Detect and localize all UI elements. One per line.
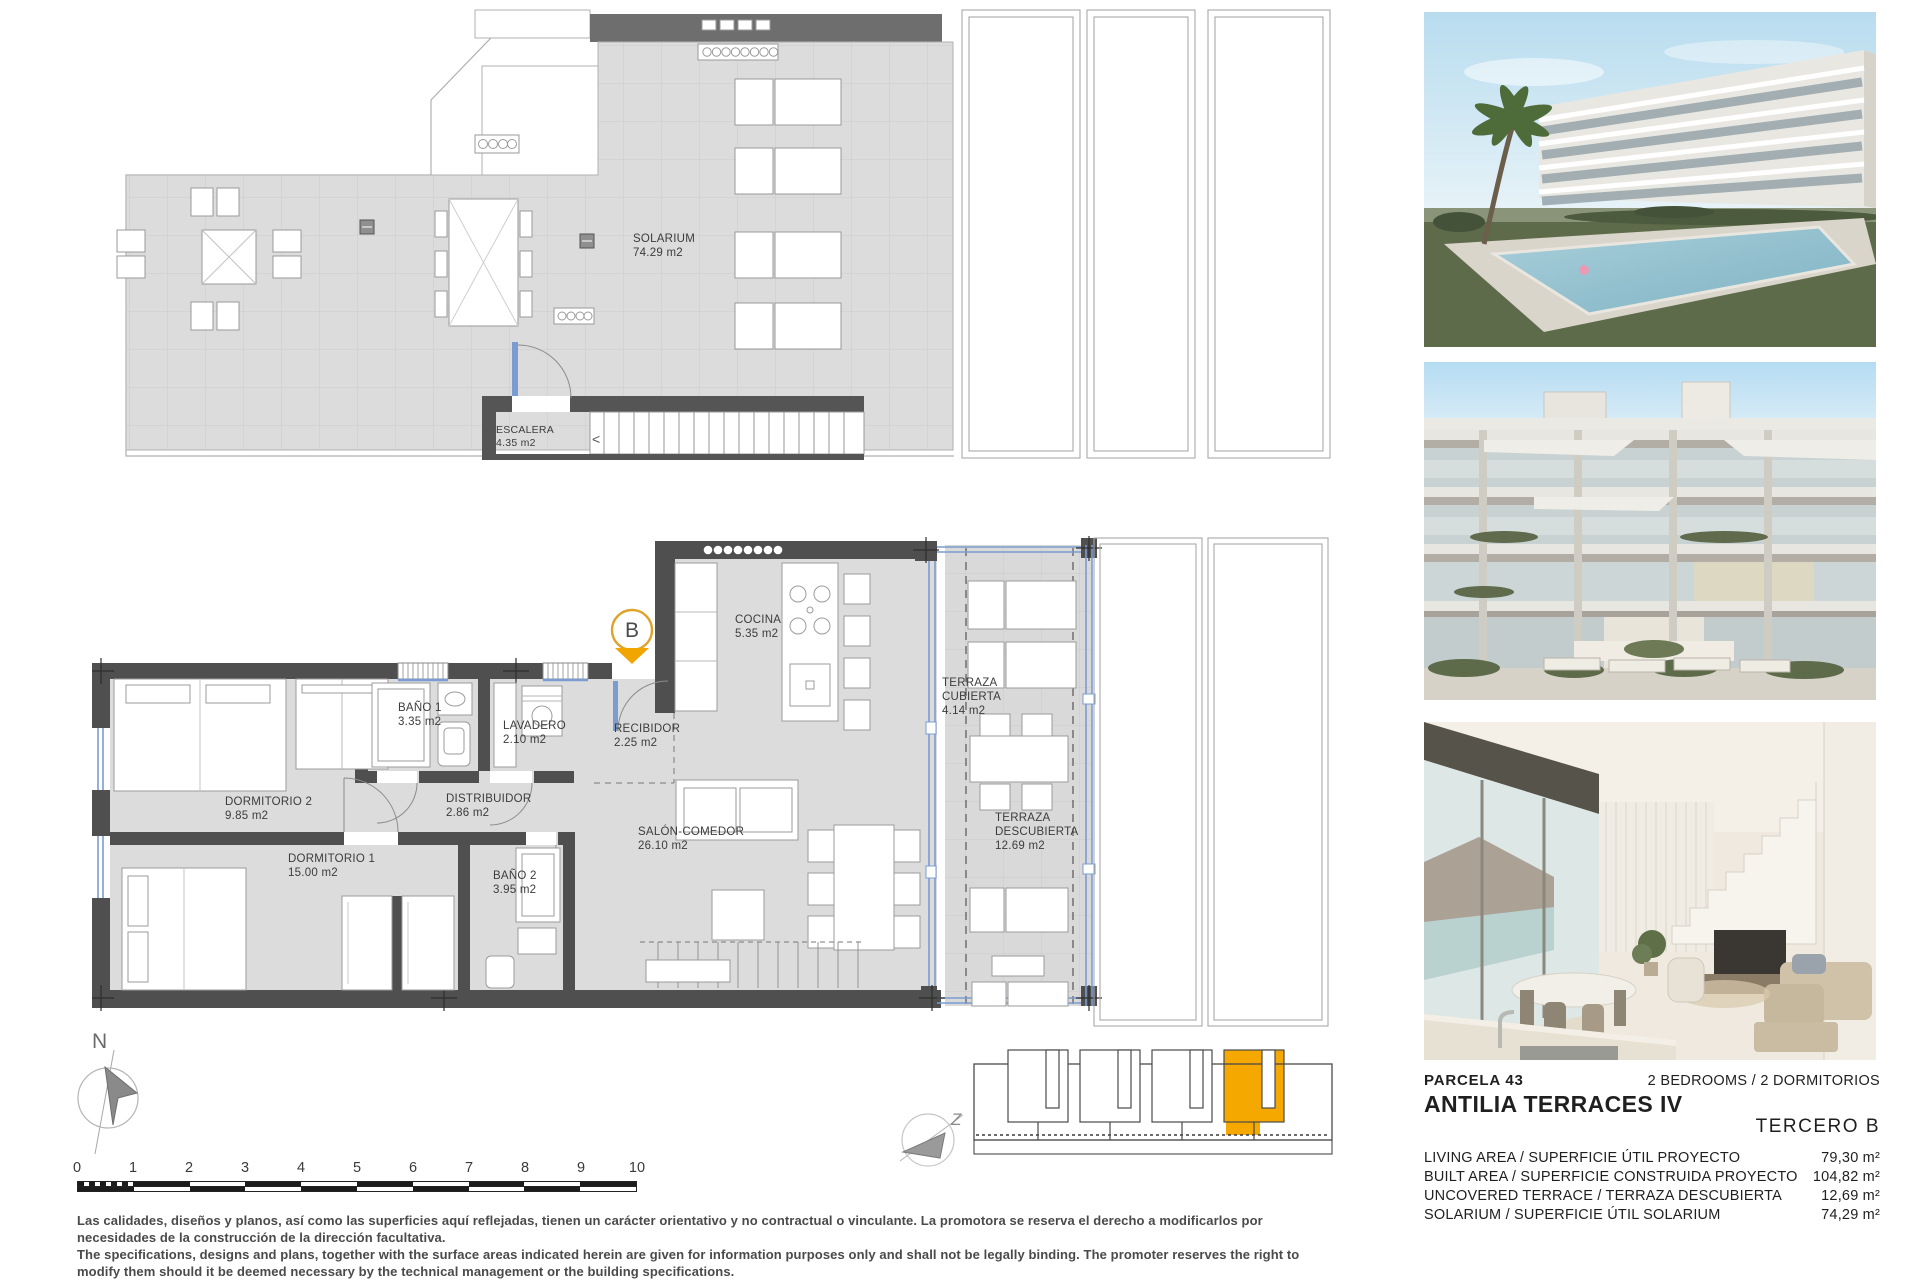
- project-title: ANTILIA TERRACES IV: [1424, 1091, 1880, 1118]
- room-label-dormitorio-1: DORMITORIO 115.00 m2: [288, 853, 375, 881]
- scale-number: 3: [241, 1160, 249, 1176]
- unit-letter: B: [625, 619, 639, 642]
- area-row-value: 104,82 m²: [1811, 1167, 1880, 1186]
- scale-number: 8: [521, 1160, 529, 1176]
- scale-number: 1: [129, 1160, 137, 1176]
- parcela-label: PARCELA 43: [1424, 1072, 1524, 1089]
- area-row-value: 12,69 m²: [1811, 1186, 1880, 1205]
- scale-number: 0: [73, 1160, 81, 1176]
- main-plan-drawing: B: [92, 536, 1102, 1036]
- room-label-salon-comedor: SALÓN-COMEDOR26.10 m2: [638, 826, 744, 854]
- scale-number: 2: [185, 1160, 193, 1176]
- unit-b-marker: B: [612, 610, 652, 664]
- main-floor-plan: B: [92, 536, 1102, 1036]
- scale-number: 10: [629, 1160, 645, 1176]
- adjacent-units-outline-top: [952, 6, 1344, 462]
- adjacent-units-outline-main: [1084, 534, 1340, 1032]
- room-label-lavadero: LAVADERO2.10 m2: [503, 720, 566, 748]
- photo-interior: [1424, 722, 1876, 1060]
- room-label-recibidor: RECIBIDOR2.25 m2: [614, 723, 680, 751]
- room-label-cocina: COCINA5.35 m2: [735, 614, 781, 642]
- disclaimer-es: Las calidades, diseños y planos, así com…: [77, 1212, 1332, 1246]
- scale-number: 5: [353, 1160, 361, 1176]
- area-row-label: BUILT AREA / SUPERFICIE CONSTRUIDA PROYE…: [1424, 1167, 1811, 1186]
- keyplan-compass-icon: Z: [888, 1095, 978, 1175]
- area-row-label: LIVING AREA / SUPERFICIE ÚTIL PROYECTO: [1424, 1148, 1811, 1167]
- table-row: UNCOVERED TERRACE / TERRAZA DESCUBIERTA …: [1424, 1186, 1880, 1205]
- table-row: BUILT AREA / SUPERFICIE CONSTRUIDA PROYE…: [1424, 1167, 1880, 1186]
- compass-label: Z: [950, 1110, 962, 1129]
- scale-number: 7: [465, 1160, 473, 1176]
- area-row-value: 79,30 m²: [1811, 1148, 1880, 1167]
- room-label-terraza-descubierta: TERRAZA DESCUBIERTA12.69 m2: [995, 812, 1087, 853]
- room-label-terraza-cubierta: TERRAZA CUBIERTA4.14 m2: [942, 677, 1006, 718]
- room-label-bano-1: BAÑO 13.35 m2: [398, 702, 442, 730]
- north-arrow-icon: N: [70, 1022, 160, 1162]
- area-row-label: SOLARIUM / SUPERFICIE ÚTIL SOLARIUM: [1424, 1206, 1811, 1225]
- solarium-plan-drawing: <: [92, 8, 972, 460]
- scale-number: 6: [409, 1160, 417, 1176]
- table-row: SOLARIUM / SUPERFICIE ÚTIL SOLARIUM 74,2…: [1424, 1206, 1880, 1225]
- room-label-distribuidor: DISTRIBUIDOR2.86 m2: [446, 793, 531, 821]
- photo-exterior-pool: [1424, 12, 1876, 347]
- areas-table: LIVING AREA / SUPERFICIE ÚTIL PROYECTO 7…: [1424, 1148, 1880, 1225]
- room-label-bano-2: BAÑO 23.95 m2: [493, 870, 537, 898]
- room-label-solarium: SOLARIUM 74.29 m2: [633, 233, 695, 261]
- room-label-dormitorio-2: DORMITORIO 29.85 m2: [225, 796, 312, 824]
- unit-info-block: PARCELA 43 2 BEDROOMS / 2 DORMITORIOS AN…: [1424, 1072, 1880, 1225]
- room-label-escalera: ESCALERA 4.35 m2: [496, 424, 554, 449]
- svg-text:<: <: [592, 431, 600, 447]
- key-plan: [968, 1048, 1340, 1163]
- solarium-floor-plan: <: [92, 8, 972, 460]
- disclaimer: Las calidades, diseños y planos, así com…: [77, 1212, 1332, 1280]
- scale-number: 9: [577, 1160, 585, 1176]
- disclaimer-en: The specifications, designs and plans, t…: [77, 1246, 1332, 1280]
- photo-facade: [1424, 362, 1876, 700]
- bedrooms-label: 2 BEDROOMS / 2 DORMITORIOS: [1648, 1073, 1880, 1089]
- scale-bar: 0 1 2 3 4 5 6 7 8 9 10: [77, 1160, 639, 1200]
- solarium-long-table: [435, 199, 532, 326]
- area-row-label: UNCOVERED TERRACE / TERRAZA DESCUBIERTA: [1424, 1186, 1811, 1205]
- floor-label: TERCERO B: [1424, 1116, 1880, 1138]
- area-row-value: 74,29 m²: [1811, 1206, 1880, 1225]
- table-row: LIVING AREA / SUPERFICIE ÚTIL PROYECTO 7…: [1424, 1148, 1880, 1167]
- plan-sheet: < SOLARIUM 74.29 m2 ESCALERA 4.35 m2: [0, 0, 1920, 1280]
- scale-number: 4: [297, 1160, 305, 1176]
- marker-arrow-icon: [615, 648, 649, 664]
- north-label: N: [92, 1030, 107, 1053]
